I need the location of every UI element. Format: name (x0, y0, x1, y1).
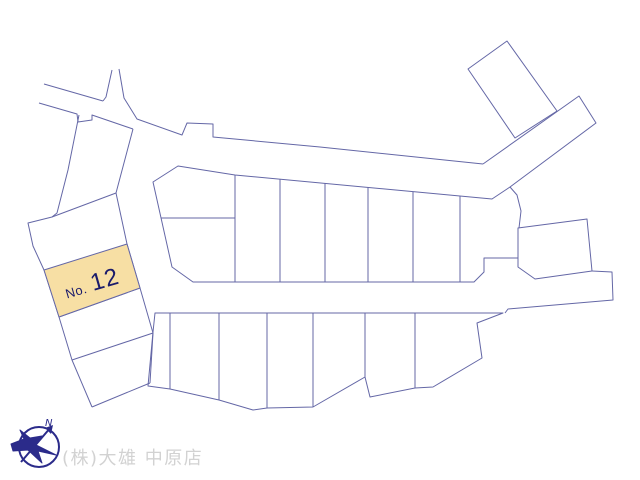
road-upper-left-bottom-edge (39, 103, 133, 129)
east-parcel (518, 219, 592, 279)
lower-block-parcel-outline (148, 313, 503, 410)
upper-right-parcel (468, 41, 557, 138)
road-north-stub-left-edge (103, 70, 112, 101)
west-strip-divider-3 (72, 333, 153, 360)
plot-map-canvas: No. 12 N (株)大雄 中原店 (0, 0, 640, 480)
shapes-root (11, 41, 613, 467)
road-main-north-edge (119, 69, 483, 164)
credit-text: (株)大雄 中原店 (62, 448, 203, 469)
compass-north-label: N (45, 418, 53, 429)
road-east-boundary (505, 271, 613, 313)
plot-map-svg: No. 12 N (株)大雄 中原店 (0, 0, 640, 480)
west-strip-bottom-edge (92, 383, 150, 407)
compass-bird (11, 430, 56, 463)
road-upper-left-top-edge (44, 84, 103, 101)
central-block-parcel-outline (153, 166, 521, 282)
